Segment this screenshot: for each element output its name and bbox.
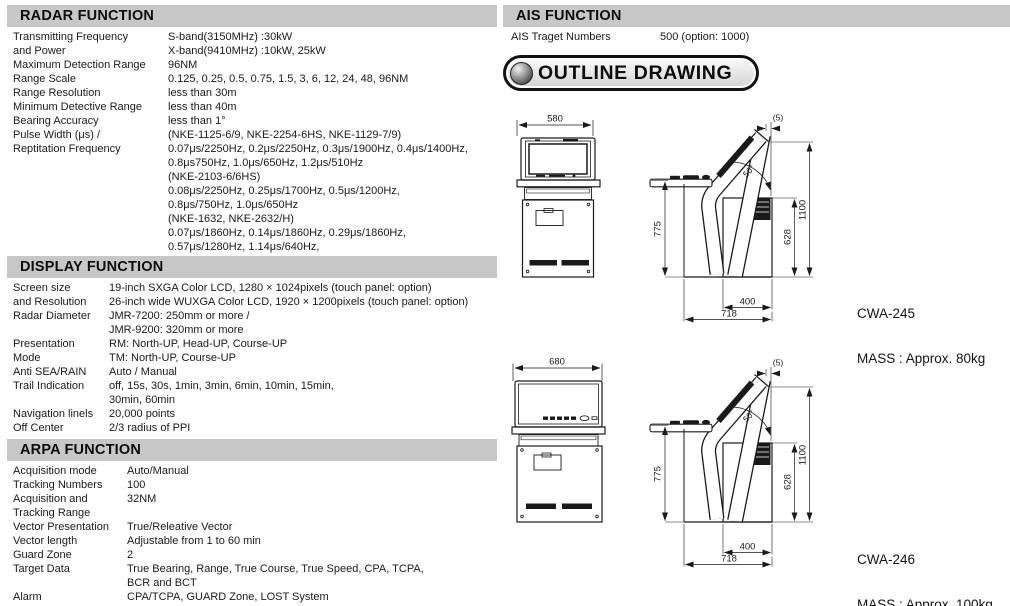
spec-value: Adjustable from 1 to 60 min [127, 534, 261, 548]
spec-label: Radar Diameter [7, 309, 109, 337]
spec-row: Guard Zone2 [7, 548, 497, 562]
radar-spec-table: Transmitting Frequency and PowerS-band(3… [7, 30, 497, 254]
side-view: 50° (5) 1100 628 775 400 718 [650, 358, 813, 567]
model-name: CWA-245 [857, 306, 985, 321]
vent-slot [562, 504, 592, 510]
spec-value: Auto / Manual [109, 365, 177, 379]
spec-label: Navigation linels [7, 407, 109, 421]
spec-label: AIS Traget Numbers [503, 30, 660, 44]
spec-label: Pulse Width (μs) / Reptitation Frequency [7, 128, 168, 254]
section-header-arpa: ARPA FUNCTION [7, 439, 497, 461]
spec-label: Guard Zone [7, 548, 127, 562]
spec-row: Anti SEA/RAINAuto / Manual [7, 365, 497, 379]
spec-value: 100 [127, 478, 145, 492]
spec-label: Vector length [7, 534, 127, 548]
keyboard-desk [512, 427, 605, 434]
spec-value: 0.125, 0.25, 0.5, 0.75, 1.5, 3, 6, 12, 2… [168, 72, 408, 86]
spec-value: off, 15s, 30s, 1min, 3min, 6min, 10min, … [109, 379, 334, 407]
spec-label: Screen size and Resolution [7, 281, 109, 309]
section-header-ais: AIS FUNCTION [503, 5, 1010, 27]
spec-row: AIS Traget Numbers500 (option: 1000) [503, 30, 1010, 44]
spec-value: JMR-7200: 250mm or more / JMR-9200: 320m… [109, 309, 250, 337]
trackball [580, 416, 589, 421]
spec-value: less than 30m [168, 86, 236, 100]
spec-value: 2/3 radius of PPI [109, 421, 190, 435]
spec-row: Transmitting Frequency and PowerS-band(3… [7, 30, 497, 58]
display-spec-table: Screen size and Resolution19-inch SXGA C… [7, 281, 497, 435]
spec-label: Alarm [7, 590, 127, 604]
spec-row: Bearing Accuracyless than 1° [7, 114, 497, 128]
spec-label: Presentation Mode [7, 337, 109, 365]
spec-row: Radar DiameterJMR-7200: 250mm or more / … [7, 309, 497, 337]
spec-label: Trail Indication [7, 379, 109, 407]
spec-row: Trail Indicationoff, 15s, 30s, 1min, 3mi… [7, 379, 497, 407]
spec-value: CPA/TCPA, GUARD Zone, LOST System [127, 590, 329, 604]
spec-value: 500 (option: 1000) [660, 30, 749, 44]
dim-height-desk: 775 [653, 221, 664, 237]
spec-row: Vector PresentationTrue/Releative Vector [7, 520, 497, 534]
spec-value: (NKE-1125-6/9, NKE-2254-6HS, NKE-1129-7/… [168, 128, 468, 254]
spec-label: Vector Presentation [7, 520, 127, 534]
outline-drawing-title: OUTLINE DRAWING [538, 62, 732, 85]
section-header-radar: RADAR FUNCTION [7, 5, 497, 27]
spec-row: Tracking Numbers100 [7, 478, 497, 492]
outline-drawing-banner: OUTLINE DRAWING [503, 55, 759, 91]
spec-value: True Bearing, Range, True Course, True S… [127, 562, 424, 590]
model-label-cwa245: CWA-245 MASS : Approx. 80kg [857, 276, 985, 396]
trackball [702, 420, 710, 425]
spec-label: Acquisition and Tracking Range [7, 492, 127, 520]
arpa-spec-table: Acquisition modeAuto/Manual Tracking Num… [7, 464, 497, 604]
section-title: RADAR FUNCTION [7, 8, 154, 24]
spec-row: Navigation linels20,000 points [7, 407, 497, 421]
dim-base-width: 400 [740, 297, 756, 308]
spec-row: Target DataTrue Bearing, Range, True Cou… [7, 562, 497, 590]
spec-row: Acquisition modeAuto/Manual [7, 464, 497, 478]
spec-value: RM: North-UP, Head-UP, Course-UP TM: Nor… [109, 337, 287, 365]
spec-value: 19-inch SXGA Color LCD, 1280 × 1024pixel… [109, 281, 468, 309]
datasheet-page: RADAR FUNCTION Transmitting Frequency an… [0, 0, 1010, 606]
spec-label: Off Center [7, 421, 109, 435]
dim-depth: 718 [721, 554, 737, 565]
trackball [702, 175, 710, 180]
model-mass: MASS : Approx. 80kg [857, 351, 985, 366]
side-view: 50° (5) 1100 628 775 400 718 [650, 113, 813, 322]
spec-value: less than 40m [168, 100, 236, 114]
dim-front-width: 580 [547, 114, 563, 125]
spec-label: Tracking Numbers [7, 478, 127, 492]
vent-slot [526, 504, 556, 510]
dim-height-desk: 775 [653, 466, 664, 482]
dim-height-upper: 628 [783, 229, 794, 245]
spec-label: Maximum Detection Range [7, 58, 168, 72]
spec-row: Screen size and Resolution19-inch SXGA C… [7, 281, 497, 309]
spec-row: Range Resolutionless than 30m [7, 86, 497, 100]
spec-value: 32NM [127, 492, 156, 520]
model-label-cwa246: CWA-246 MASS : Approx. 100kg [857, 522, 993, 606]
spec-row: Vector lengthAdjustable from 1 to 60 min [7, 534, 497, 548]
spec-value: True/Releative Vector [127, 520, 232, 534]
spec-row: AlarmCPA/TCPA, GUARD Zone, LOST System [7, 590, 497, 604]
dim-height-total: 1100 [798, 200, 809, 220]
spec-row: Presentation ModeRM: North-UP, Head-UP, … [7, 337, 497, 365]
spec-label: Bearing Accuracy [7, 114, 168, 128]
spec-row: Acquisition and Tracking Range32NM [7, 492, 497, 520]
dim-height-total: 1100 [798, 445, 809, 465]
front-view: 580 [517, 114, 600, 278]
sphere-bullet-icon [510, 62, 533, 85]
outline-drawing-cwa246: 680 [505, 345, 845, 595]
dim-top-offset: (5) [773, 358, 784, 368]
dim-depth: 718 [721, 309, 737, 320]
ais-spec-table: AIS Traget Numbers500 (option: 1000) [503, 30, 1010, 44]
front-view: 680 [512, 357, 605, 523]
spec-label: Minimum Detective Range [7, 100, 168, 114]
section-title: ARPA FUNCTION [7, 442, 141, 458]
spec-label: Acquisition mode [7, 464, 127, 478]
spec-row: Range Scale0.125, 0.25, 0.5, 0.75, 1.5, … [7, 72, 497, 86]
spec-value: 2 [127, 548, 133, 562]
spec-label: Range Scale [7, 72, 168, 86]
section-title: DISPLAY FUNCTION [7, 259, 163, 275]
dim-top-offset: (5) [773, 113, 784, 123]
vent-slot [562, 260, 590, 266]
spec-label: Transmitting Frequency and Power [7, 30, 168, 58]
section-title: AIS FUNCTION [503, 8, 622, 24]
pedestal [517, 446, 602, 522]
spec-value: 20,000 points [109, 407, 175, 421]
spec-row: Pulse Width (μs) / Reptitation Frequency… [7, 128, 497, 254]
spec-row: Minimum Detective Rangeless than 40m [7, 100, 497, 114]
model-mass: MASS : Approx. 100kg [857, 597, 993, 606]
dim-base-width: 400 [740, 542, 756, 553]
lcd-screen [529, 144, 587, 174]
dim-front-width: 680 [549, 357, 565, 368]
outline-drawing-cwa245: 580 [505, 100, 845, 345]
section-header-display: DISPLAY FUNCTION [7, 256, 497, 278]
spec-label: Range Resolution [7, 86, 168, 100]
model-name: CWA-246 [857, 552, 993, 567]
spec-label: Target Data [7, 562, 127, 590]
spec-value: S-band(3150MHz) :30kW X-band(9410MHz) :1… [168, 30, 326, 58]
spec-row: Off Center2/3 radius of PPI [7, 421, 497, 435]
keyboard-desk [517, 180, 600, 187]
spec-value: 96NM [168, 58, 197, 72]
spec-value: Auto/Manual [127, 464, 189, 478]
spec-value: less than 1° [168, 114, 226, 128]
dim-height-upper: 628 [783, 474, 794, 490]
spec-row: Maximum Detection Range96NM [7, 58, 497, 72]
vent-slot [530, 260, 558, 266]
monitor-housing [515, 381, 602, 427]
spec-label: Anti SEA/RAIN [7, 365, 109, 379]
